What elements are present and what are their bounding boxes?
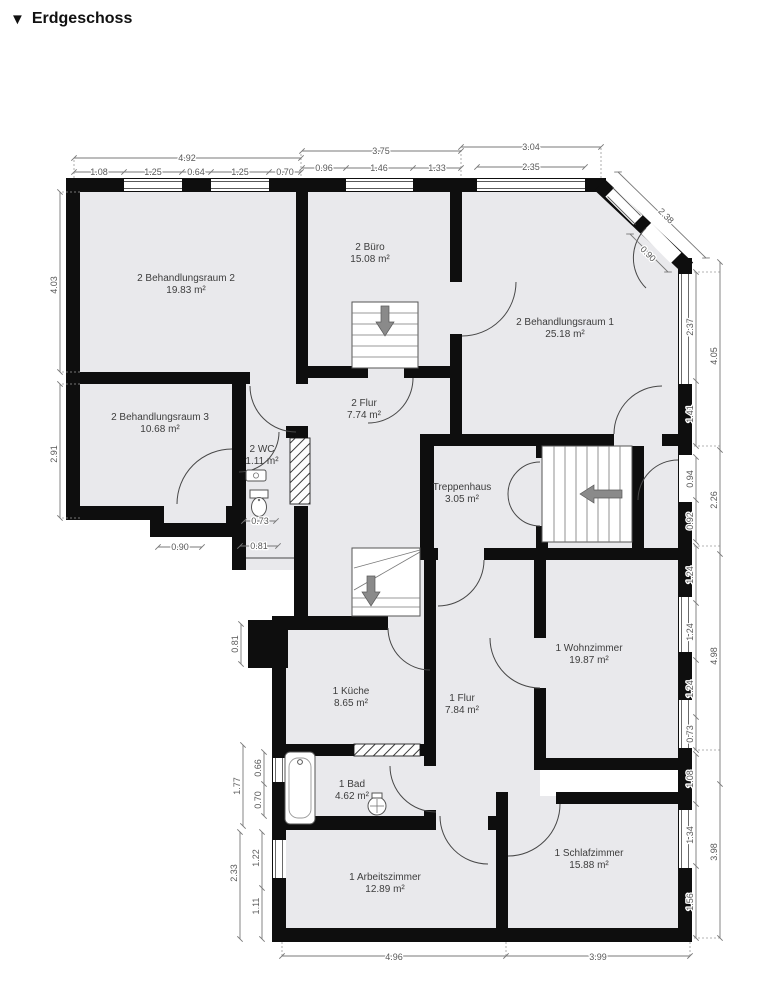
dimension-label: 0.66 (253, 759, 263, 777)
dimension-label: 1.24 (685, 623, 695, 641)
dimension-label: 2.35 (522, 162, 540, 172)
dimension-label: 1.41 (685, 405, 695, 423)
floorplan-drawing: 4.92 1.08 1.25 0.64 1.25 0.70 3.75 0.96 … (0, 0, 768, 1000)
stairs-lower (352, 548, 420, 616)
dimension-label: 1.34 (685, 826, 695, 844)
stairs-upper (352, 302, 418, 368)
wc-sink (246, 470, 266, 481)
dimension-label: 0.81 (230, 635, 240, 653)
dimension-label: 0.90 (171, 542, 189, 552)
dimension-label: 0.94 (685, 470, 695, 488)
dimension-label: 1.25 (231, 167, 249, 177)
dimension-label: 4.98 (709, 647, 719, 665)
dimension-label: 1.24 (685, 680, 695, 698)
dimension-label: 0.70 (253, 791, 263, 809)
dimension-label: 2.91 (49, 445, 59, 463)
dimension-label: 2.38 (656, 206, 675, 225)
room-label-flur-2: 2 Flur7.74 m² (347, 398, 382, 421)
dimension-label: 4.05 (709, 347, 719, 365)
room-label-wc: 2 WC1.11 m² (245, 444, 279, 467)
dimension-label: 1.22 (251, 849, 261, 867)
dimension-label: 2.26 (709, 491, 719, 509)
dimension-label: 0.73 (251, 516, 269, 526)
dimension-label: 4.92 (178, 153, 196, 163)
bathtub (285, 752, 315, 824)
dimension-label: 1.33 (428, 163, 446, 173)
dimension-label: 3.75 (372, 146, 390, 156)
dimension-label: 0.70 (276, 167, 294, 177)
wc-toilet (250, 490, 268, 517)
dimension-label: 2.33 (229, 864, 239, 882)
dimension-label: 1.24 (685, 566, 695, 584)
dimension-label: 3.04 (522, 142, 540, 152)
dimension-label: 1.08 (90, 167, 108, 177)
room-label-kueche: 1 Küche8.65 m² (333, 686, 370, 709)
dimension-label: 1.25 (144, 167, 162, 177)
dimension-label: 2.37 (685, 318, 695, 336)
dimension-label: 1.11 (251, 898, 261, 915)
dimension-label: 0.81 (250, 541, 268, 551)
dimension-label: 0.64 (187, 167, 205, 177)
stairs-main (542, 446, 632, 542)
dimension-label: 3.98 (709, 843, 719, 861)
floorplan-page: ▼ Erdgeschoss (0, 0, 768, 1000)
dimension-label: 4.03 (49, 276, 59, 294)
dimension-label: 1.08 (685, 770, 695, 788)
dimension-label: 1.46 (370, 163, 388, 173)
dimension-label: 0.92 (685, 512, 695, 530)
room-label-flur-1: 1 Flur7.84 m² (445, 693, 480, 716)
room-label-buero: 2 Büro15.08 m² (350, 242, 390, 265)
dimension-label: 1.56 (685, 893, 695, 911)
dimension-label: 0.96 (315, 163, 333, 173)
dimension-label: 4.96 (385, 952, 403, 962)
room-label-bad: 1 Bad4.62 m² (335, 779, 370, 802)
dimension-label: 3.99 (589, 952, 607, 962)
dimension-label: 0.73 (685, 725, 695, 743)
dimension-label: 1.77 (232, 777, 242, 795)
